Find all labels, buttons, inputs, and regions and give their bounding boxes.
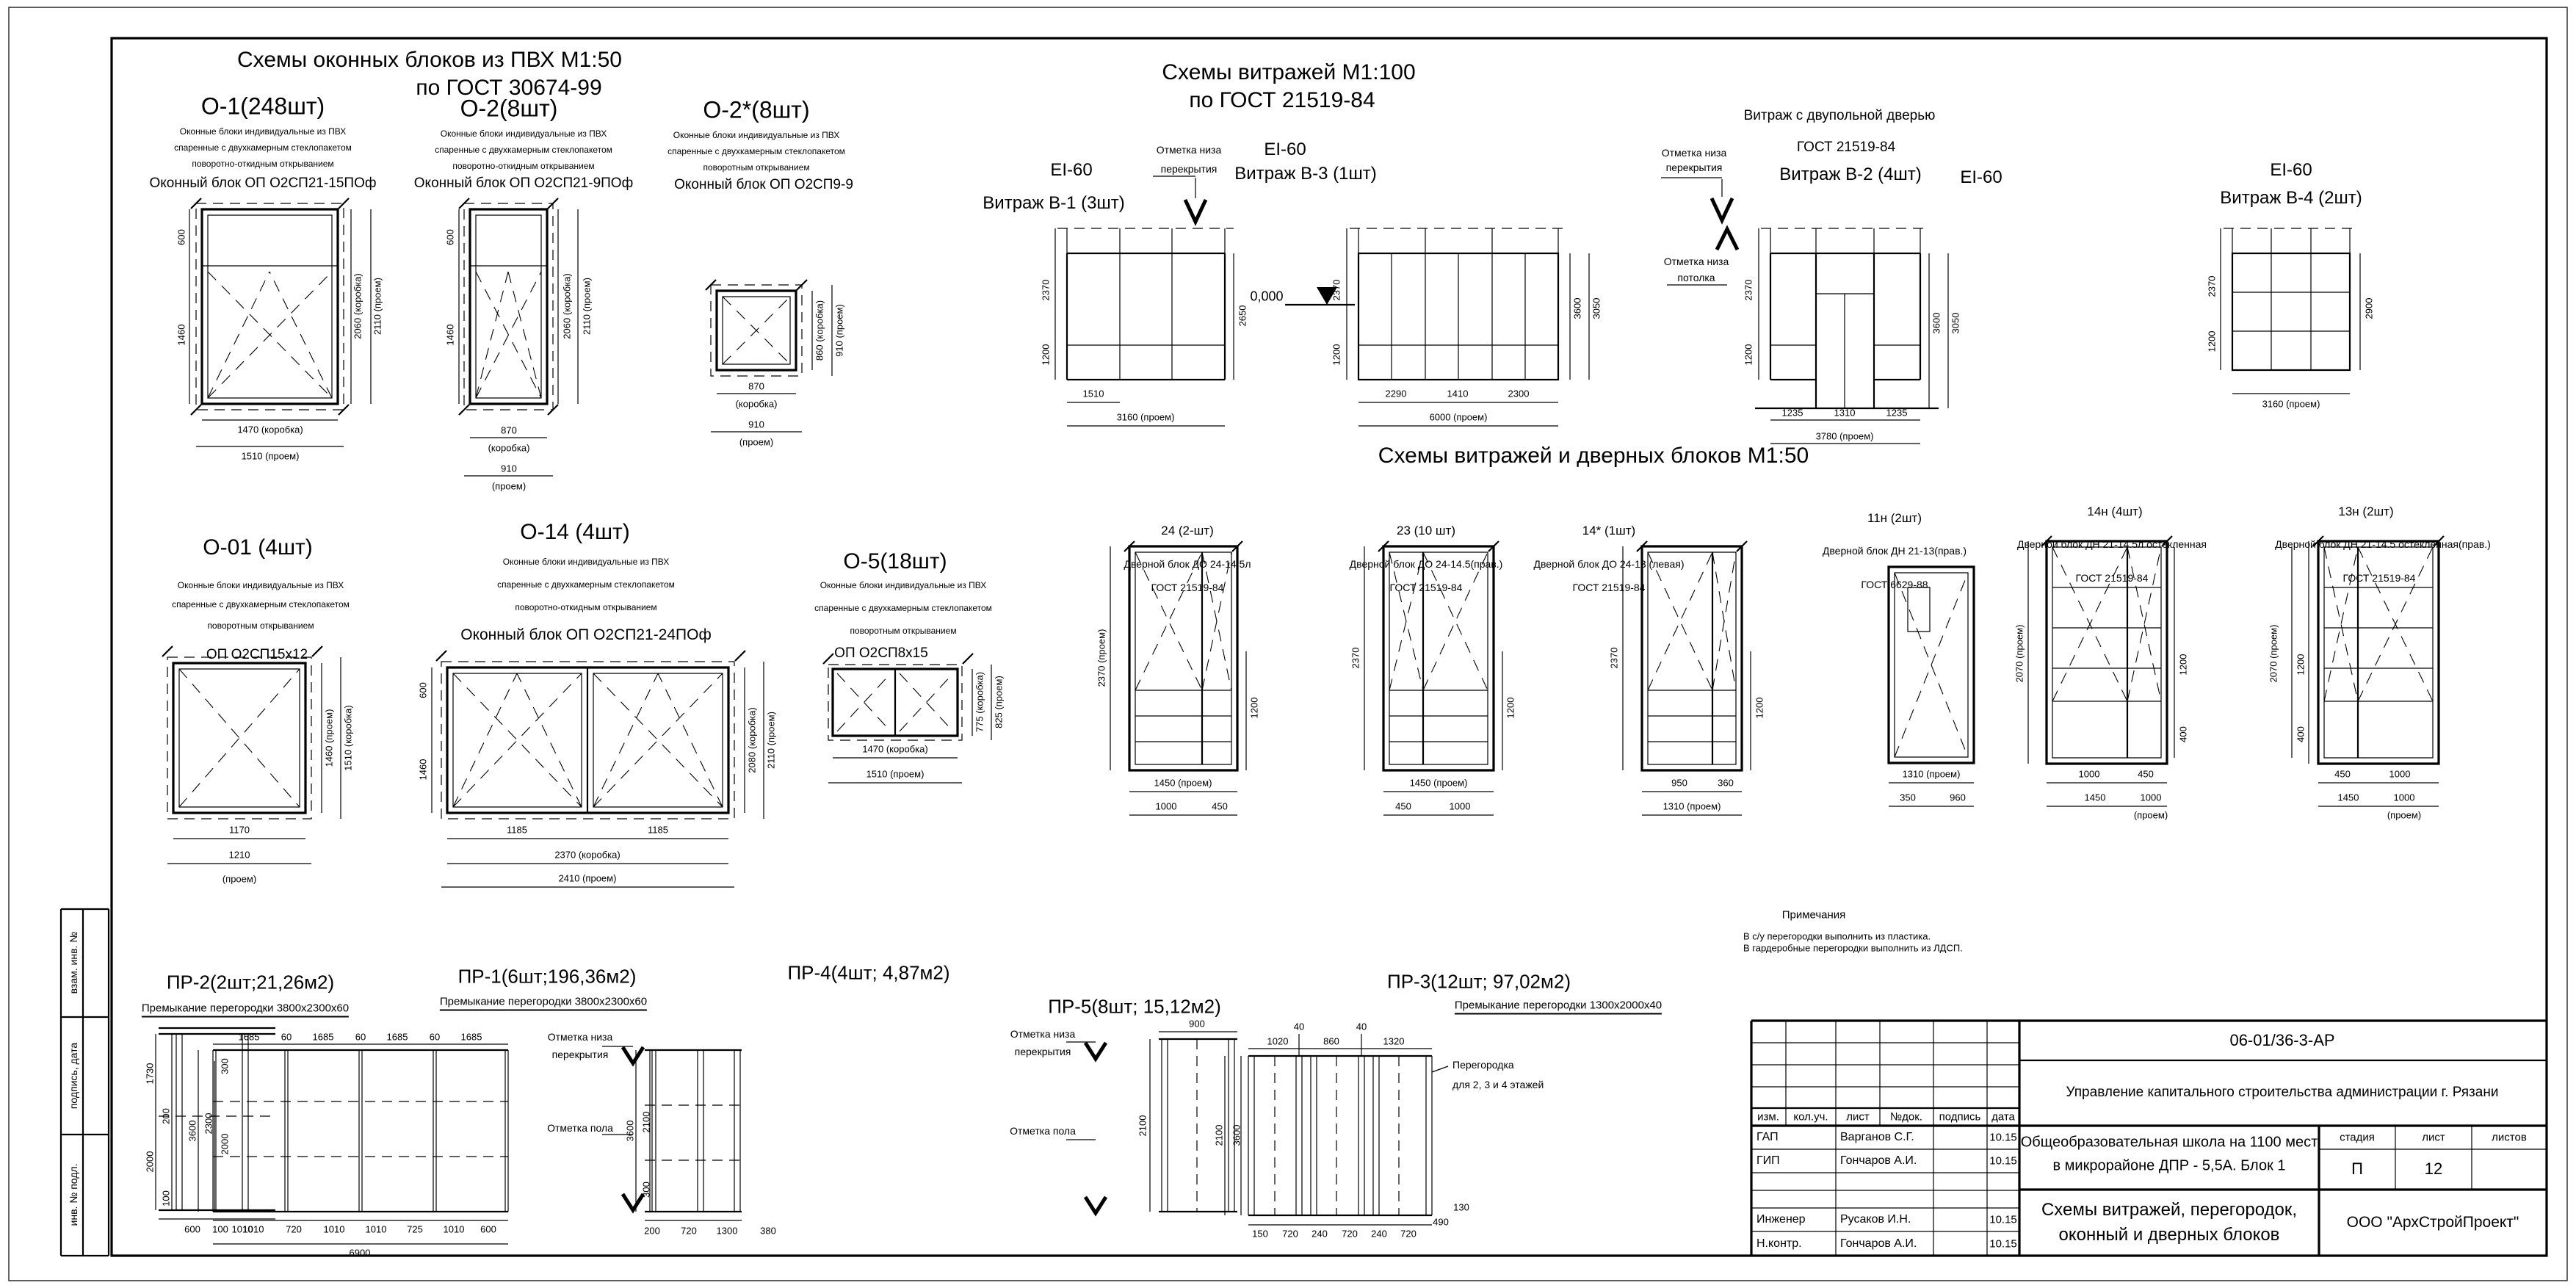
titleblock-stage-value: П [2351,1159,2363,1179]
dim-label: 2080 (коробка) [747,707,758,773]
dim-label: 3600 [1931,313,1942,334]
dim-label: 1185 [648,825,668,836]
titleblock-staff-name: Гончаров А.И. [1840,1237,1917,1251]
dim-label: 3050 [1950,313,1961,334]
dim-label: 300 [220,1058,231,1074]
partition-pr2-title: ПР-2(2шт;21,26м2) [167,972,334,994]
titleblock-col-koluch: кол.уч. [1793,1111,1828,1124]
mark-slab-label: перекрытия [552,1049,609,1060]
titleblock-col-podpis: подпись [1939,1111,1981,1124]
dim-label: 3600 [187,1121,198,1142]
window-o2-desc: спаренные с двухкамерным стеклопакетом [435,145,612,155]
mark-slab-label: перекрытия [1666,162,1723,173]
notes-title: Примечания [1782,909,1846,922]
window-o01-desc: Оконные блоки индивидуальные из ПВХ [178,580,344,590]
partition-pr3-note: для 2, 3 и 4 этажей [1452,1079,1544,1090]
dim-label: 1200 [1505,698,1516,719]
mark-floor-label: Отметка пола [547,1122,613,1134]
section-title-vitrages: Схемы витражей М1:100 [1162,60,1415,85]
dim-label: 1450 (проем) [1154,778,1212,789]
dim-label: 200 [644,1226,660,1237]
dim-label: 600 [445,229,456,245]
dim-label: 2900 [2364,298,2375,319]
dim-label: 450 [1212,801,1228,812]
window-o2-desc: Оконные блоки индивидуальные из ПВХ [441,129,607,139]
dim-label: 2070 (проем) [2014,625,2025,683]
dim-label: 1450 (проем) [1410,778,1468,789]
window-o2s-desc: спаренные с двухкамерным стеклопакетом [667,146,845,156]
dim-label: 720 [1400,1229,1417,1240]
dim-label: 950 [1671,778,1687,789]
door-d13n-gost: ГОСТ 21519-84 [2343,572,2416,584]
dim-label: (проем) [739,437,773,448]
dim-label: 2370 [1350,648,1361,669]
titleblock-staff-role: ГИП [1756,1154,1780,1168]
vitrage-v3-ei: EI-60 [1264,140,1306,160]
dim-label: 2060 (коробка) [562,273,573,339]
door-d14n-num: 14н (4шт) [2087,504,2142,519]
titleblock-object: в микрорайоне ДПР - 5,5А. Блок 1 [2052,1158,2285,1175]
titleblock-col-sheets: листов [2492,1132,2527,1144]
dim-label: 720 [681,1226,697,1237]
dim-label: 2300 [1508,388,1530,399]
window-o1-title: О-1(248шт) [201,93,325,120]
level-zero-label: 0,000 [1250,289,1283,305]
dim-label: 100 [161,1190,172,1206]
dim-label: 2100 [1137,1115,1148,1137]
dim-label: 1510 (коробка) [343,705,354,770]
window-o1-desc: Оконные блоки индивидуальные из ПВХ [180,126,347,137]
door-d24-gost: ГОСТ 21519-84 [1151,582,1224,593]
mark-ceiling-label: потолка [1677,272,1715,283]
mark-slab-label: перекрытия [1015,1046,1071,1057]
vitrage-v1-ei: EI-60 [1050,160,1092,181]
dim-label: (проем) [222,874,256,885]
titleblock-staff-name: Варганов С.Г. [1840,1131,1914,1144]
titleblock-staff-date: 10.15 [1989,1214,2017,1226]
dim-label: 1310 [1834,408,1856,419]
dim-label: 600 [184,1224,200,1235]
titleblock-staff-name: Гончаров А.И. [1840,1154,1917,1168]
dim-label: 2290 [1386,388,1407,399]
dim-label: 1000 [2389,769,2411,780]
titleblock-col-list: лист [1846,1111,1870,1124]
dim-label: 720 [1342,1229,1358,1240]
window-o2s-block: Оконный блок ОП О2СП9-9 [674,177,853,193]
window-o5-desc: поворотным открыванием [850,626,956,636]
door-d11n-num: 11н (2шт) [1867,511,1922,526]
dim-label: 775 (коробка) [974,672,985,732]
dim-label: 1410 [1447,388,1469,399]
dim-label: 2300 [203,1113,214,1135]
dim-label: 910 [748,419,764,430]
vitrage-v4-ei: EI-60 [2270,160,2312,181]
dim-label: 860 (коробка) [814,300,825,361]
partition-pr3-sub: Премыкание перегородки 1300х2000х40 [1455,999,1662,1015]
dim-label: 3780 (проем) [1816,431,1874,442]
dim-label: 2110 (проем) [372,278,383,335]
dim-label: 1470 (коробка) [237,424,303,435]
vitrage-v2-title: Витраж В-2 (4шт) [1779,164,1921,185]
dim-label: 725 [407,1224,423,1235]
window-o1-desc: спаренные с двухкамерным стеклопакетом [174,142,352,153]
dim-label: 2110 (проем) [582,278,593,335]
dim-label: 1235 [1782,408,1803,419]
titleblock-col-sheet: лист [2422,1132,2445,1144]
dim-label: 1685 [387,1032,408,1043]
dim-label: 2070 (проем) [2268,625,2279,683]
dim-label: 6900 [350,1248,371,1259]
dim-label: 825 (проем) [994,676,1005,728]
dim-label: 1000 [1156,801,1177,812]
section-title-middle: Схемы витражей и дверных блоков М1:50 [1378,444,1809,468]
mark-slab-label: Отметка низа [1662,147,1727,159]
dim-label: 1185 [507,825,527,836]
titleblock-staff-role: Инженер [1756,1213,1806,1226]
mark-floor-label: Отметка пола [1010,1125,1076,1137]
window-o2s-desc: Оконные блоки индивидуальные из ПВХ [673,130,840,140]
dim-label: 150 [1252,1229,1268,1240]
titleblock-staff-name: Русаков И.Н. [1840,1213,1911,1226]
vitrage-v2-ei: EI-60 [1960,167,2002,188]
dim-label: 490 [1433,1217,1449,1228]
window-o2-desc: поворотно-откидным открыванием [452,161,594,171]
dim-label: 1200 [1754,698,1765,719]
dim-label: 450 [2138,769,2154,780]
titleblock-col-stage: стадия [2340,1132,2375,1144]
titleblock-object: Общеобразовательная школа на 1100 мест [2021,1135,2318,1151]
vitrage-v4-title: Витраж В-4 (2шт) [2220,188,2362,209]
titleblock-doc-code: 06-01/36-3-АР [2229,1031,2334,1050]
mark-ceiling-label: Отметка низа [1664,256,1729,267]
window-o14-title: О-14 (4шт) [520,520,630,545]
dim-label: 1510 (проем) [866,769,925,780]
dim-label: 870 [501,425,517,436]
dim-label: 600 [480,1224,496,1235]
dim-label: 910 (проем) [834,304,845,357]
dim-label: 300 [641,1182,652,1198]
dim-label: 1200 [1041,344,1052,366]
partition-pr1-title: ПР-1(6шт;196,36м2) [458,966,637,988]
titleblock-staff-date: 10.15 [1989,1132,2017,1144]
dim-label: 2370 [1041,280,1052,301]
dim-label: 1000 [2079,769,2100,780]
notes-line: В гардеробные перегородки выполнить из Л… [1743,943,1963,954]
dim-label: 40 [1294,1021,1304,1032]
dim-label: 1235 [1886,408,1908,419]
window-o01-desc: спаренные с двухкамерным стеклопакетом [172,599,350,609]
dim-label: 1460 [176,325,187,346]
dim-label: 1000 [1450,801,1471,812]
door-d14n-gost: ГОСТ 21519-84 [2076,572,2149,584]
dim-label: 450 [2334,769,2351,780]
dim-label: 1685 [239,1032,260,1043]
door-d14s-gost: ГОСТ 21519-84 [1573,582,1646,593]
window-o01-title: О-01 (4шт) [203,535,313,560]
dim-label: 860 [1323,1036,1339,1047]
dim-label: 1685 [461,1032,482,1043]
window-o1-block: Оконный блок ОП О2СП21-15ПОф [150,176,377,192]
dim-label: 3600 [1231,1125,1242,1146]
door-d14s-num: 14* (1шт) [1582,524,1635,538]
dim-label: 3050 [1591,298,1602,319]
window-o5-block: ОП О2СП8х15 [834,645,928,662]
drawing-sheet: Схемы оконных блоков из ПВХ М1:50 по ГОС… [0,0,2576,1288]
dim-label: 1200 [1743,344,1754,366]
door-d23-num: 23 (10 шт) [1397,524,1455,538]
mark-slab-label: Отметка низа [1010,1028,1076,1040]
mark-slab-label: перекрытия [1161,163,1218,175]
window-o1-desc: поворотно-откидным открыванием [192,159,333,169]
partition-pr5-title: ПР-5(8шт; 15,12м2) [1048,996,1221,1019]
dim-label: (проем) [2387,810,2421,821]
window-o01-block: ОП О2СП15х12 [206,647,308,663]
dim-label: 200 [161,1108,172,1124]
titleblock-staff-date: 10.15 [1989,1155,2017,1168]
dim-label: 1000 [2141,792,2162,803]
window-o14-block: Оконный блок ОП О2СП21-24ПОф [460,626,712,644]
dim-label: (коробка) [488,443,530,454]
partition-pr3-title: ПР-3(12шт; 97,02м2) [1387,971,1571,994]
dim-label: 1200 [1331,344,1342,366]
dim-label: 2060 (коробка) [352,273,363,339]
dim-label: 1460 [418,759,429,781]
dim-label: 1730 [145,1063,156,1085]
dim-label: 1450 [2085,792,2106,803]
section-title-vitrages-gost: по ГОСТ 21519-84 [1189,88,1375,113]
window-o5-title: О-5(18шт) [843,549,947,574]
dim-label: 2000 [220,1134,231,1155]
dim-label: 3600 [625,1121,636,1142]
vitrage-v2-note: Витраж с двупольной дверью [1744,108,1936,124]
titleblock-sheet-number: 12 [2425,1159,2442,1179]
dim-label: 400 [2178,726,2189,742]
titleblock-col-ndok: №док. [1890,1111,1922,1124]
dim-label: 400 [2295,726,2307,742]
dim-label: 3600 [1572,298,1583,319]
dim-label: 240 [1371,1229,1387,1240]
window-o01-desc: поворотным открыванием [207,621,314,631]
dim-label: 2370 (проем) [1096,629,1107,687]
titleblock-staff-date: 10.15 [1989,1238,2017,1251]
dim-label: 1000 [2394,792,2415,803]
window-o14-desc: спаренные с двухкамерным стеклопакетом [497,579,675,590]
dim-label: 720 [286,1224,302,1235]
section-title-windows: Схемы оконных блоков из ПВХ М1:50 [237,48,622,73]
stamp-label-vzam: взам. инв. № [68,932,79,994]
door-d11n-name: Дверной блок ДН 21-13(прав.) [1823,545,1967,557]
stamp-label-inv: инв. № подл. [68,1164,79,1226]
dim-label: 960 [1950,792,1966,803]
door-d14s-name: Дверной блок ДО 24-13 (левая) [1534,558,1685,570]
titleblock-sheet-name: оконный и дверных блоков [2059,1225,2280,1245]
dim-label: 60 [355,1032,366,1043]
mark-slab-label: Отметка низа [1157,144,1222,156]
dim-label: 60 [430,1032,440,1043]
titleblock-company: ООО "АрхСтройПроект" [2347,1214,2519,1231]
dim-label: 1200 [2295,654,2307,676]
dim-label: 380 [760,1226,776,1237]
vitrage-v2-gost: ГОСТ 21519-84 [1797,140,1895,156]
dim-label: 1200 [2207,331,2218,352]
dim-label: 2110 (проем) [766,712,777,769]
vitrage-v1-title: Витраж В-1 (3шт) [983,193,1124,214]
window-o14-desc: поворотно-откидным открыванием [515,602,656,612]
dim-label: 1460 [445,325,456,346]
titleblock-staff-role: Н.контр. [1756,1237,1802,1251]
dim-label: 3160 (проем) [1117,412,1175,423]
dim-label: 910 [501,463,517,474]
dim-label: 900 [1189,1019,1205,1030]
dim-label: 360 [1718,778,1734,789]
titleblock-col-izm: изм. [1757,1111,1779,1124]
partition-pr1-sub: Премыкание перегородки 3800х2300х60 [440,996,647,1011]
stamp-label-podpis: подпись, дата [68,1043,79,1109]
window-o5-desc: спаренные с двухкамерным стеклопакетом [814,603,992,613]
partition-pr2-sub: Премыкание перегородки 3800х2300х60 [142,1002,349,1018]
dim-label: 350 [1900,792,1916,803]
door-d11n-gost: ГОСТ 6629-88 [1861,579,1928,590]
titleblock-col-data: дата [1991,1111,2015,1124]
dim-label: 1470 (коробка) [862,744,927,755]
dim-label: 2100 [1214,1125,1225,1146]
dim-label: 1510 [1083,388,1104,399]
door-d14n-name: Дверной блок ДН 21-14.5л остекленная [2017,538,2207,550]
dim-label: 450 [1395,801,1411,812]
dim-label: 1300 [717,1226,738,1237]
dim-label: 1685 [313,1032,334,1043]
window-o14-desc: Оконные блоки индивидуальные из ПВХ [503,557,670,567]
dim-label: 600 [418,682,429,698]
dim-label: 1020 [1267,1036,1289,1047]
partition-pr3-note: Перегородка [1452,1059,1514,1071]
dim-label: 600 [176,229,187,245]
dim-label: 2100 [641,1112,652,1133]
dim-label: 6000 (проем) [1430,412,1488,423]
dim-label: 2370 [2207,276,2218,297]
dim-label: 240 [1311,1229,1328,1240]
dim-label: 130 [1453,1202,1469,1213]
partition-pr4-title: ПР-4(4шт; 4,87м2) [787,962,949,985]
door-d23-gost: ГОСТ 21519-84 [1390,582,1463,593]
door-d23-name: Дверной блок ДО 24-14.5(прав.) [1350,558,1503,570]
window-o2s-desc: поворотным открыванием [703,162,809,173]
titleblock-staff-role: ГАП [1756,1131,1779,1144]
dim-label: 2650 [1237,305,1248,327]
dim-label: 2370 (коробка) [554,850,620,861]
window-o2-block: Оконный блок ОП О2СП21-9ПОф [414,176,633,192]
dim-label: 1010 [243,1224,264,1235]
dim-label: 1200 [1249,698,1260,719]
dim-label: 870 [748,381,764,392]
dim-label: 60 [281,1032,292,1043]
dim-label: 2410 (проем) [559,873,617,884]
dim-label: 1010 [366,1224,387,1235]
dim-label: (проем) [492,481,526,492]
dim-label: 720 [1282,1229,1298,1240]
dim-label: 1170 [229,825,250,836]
dim-label: 1510 (проем) [242,451,300,462]
dim-label: (коробка) [736,399,778,410]
dim-label: 1310 (проем) [1663,801,1721,812]
titleblock-org: Управление капитального строительства ад… [2066,1085,2499,1101]
mark-slab-label: Отметка низа [548,1031,613,1043]
dim-label: 2000 [145,1151,156,1173]
titleblock-sheet-name: Схемы витражей, перегородок, [2041,1200,2297,1220]
dim-label: 1200 [2178,654,2189,676]
dim-label: 1450 [2338,792,2359,803]
dim-label: (проем) [2134,810,2168,821]
vitrage-v3-title: Витраж В-3 (1шт) [1234,164,1376,184]
window-o2-title: О-2(8шт) [460,95,558,123]
dim-label: 100 [212,1224,228,1235]
dim-label: 1310 (проем) [1903,769,1961,780]
door-d13n-num: 13н (2шт) [2338,504,2393,519]
dim-label: 1460 (проем) [324,709,335,767]
dim-label: 2370 [1743,280,1754,301]
window-o2s-title: О-2*(8шт) [703,97,809,124]
notes-line: В с/у перегородки выполнить из пластика. [1743,931,1931,942]
dim-label: 2370 [1331,280,1342,301]
door-d13n-name: Дверной блок ДН 21-14.5 остекленная(прав… [2275,538,2491,550]
dim-label: 40 [1356,1021,1367,1032]
window-o5-desc: Оконные блоки индивидуальные из ПВХ [820,580,987,590]
dim-label: 2370 [1609,648,1620,669]
dim-label: 1210 [229,850,250,861]
dim-label: 1320 [1383,1036,1405,1047]
door-d24-name: Дверной блок ДО 24-14.5л [1124,558,1251,570]
door-d24-num: 24 (2-шт) [1161,524,1214,538]
dim-label: 3160 (проем) [2262,399,2320,410]
dim-label: 1010 [444,1224,465,1235]
dim-label: 1010 [324,1224,345,1235]
